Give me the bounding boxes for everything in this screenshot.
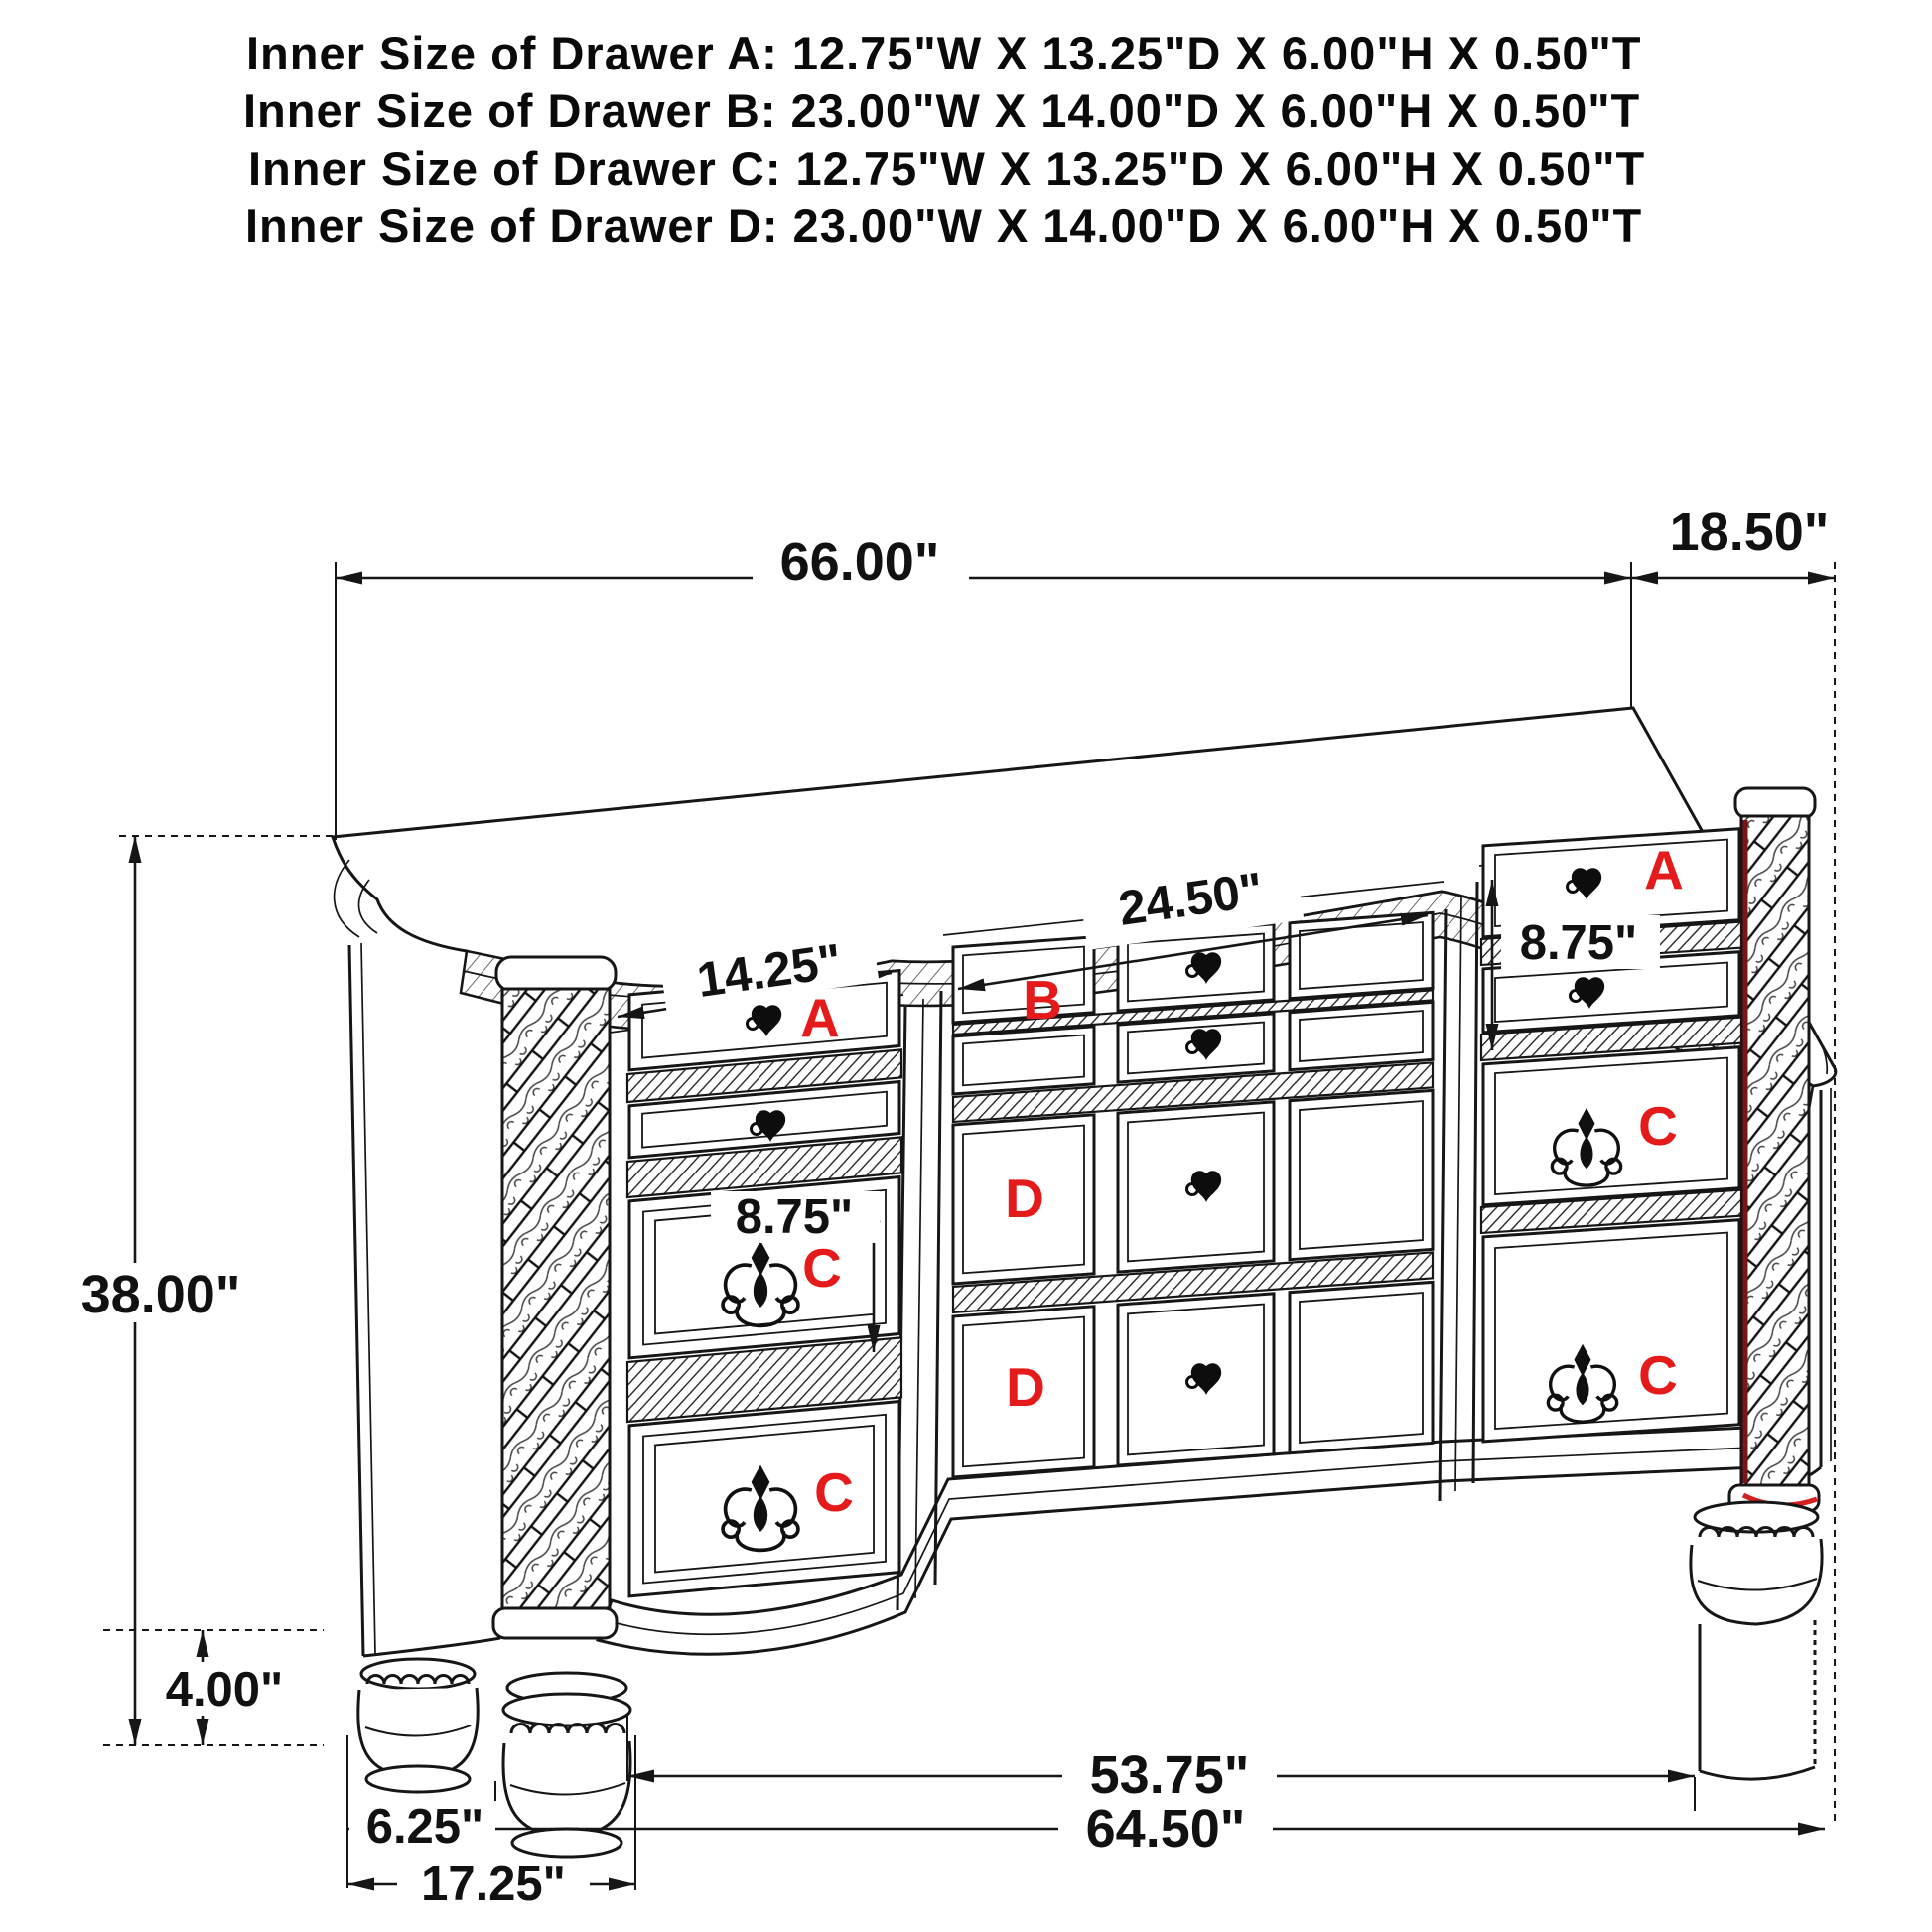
base-width-label: 64.50" [1086, 1799, 1246, 1859]
foot-inset-label: 6.25" [366, 1800, 484, 1854]
title-line-drawer-c: Inner Size of Drawer C: 12.75"W X 13.25"… [248, 142, 1645, 195]
dimension-base-width: 64.50" [495, 1799, 1825, 1859]
drawer-label-a-left: A [800, 987, 840, 1048]
drawer-d2-panel-right [1290, 1282, 1433, 1452]
title-line-drawer-b: Inner Size of Drawer B: 23.00"W X 14.00"… [243, 84, 1640, 137]
drawer-label-c-right-2: C [1638, 1344, 1678, 1406]
dresser-dimension-diagram: Inner Size of Drawer A: 12.75"W X 13.25"… [0, 0, 1932, 1932]
divider-left-middle [897, 991, 941, 1610]
dimension-inner-feet-span: 53.75" [627, 1714, 1695, 1811]
drawer-label-c-left-2: C [814, 1461, 854, 1523]
drawer-c-left-2 [629, 1402, 899, 1596]
dimension-overall-height: 38.00" [58, 836, 336, 1745]
right-height-label: 8.75" [1520, 916, 1638, 970]
left-corner-cap-detail [335, 860, 377, 937]
title-line-drawer-a: Inner Size of Drawer A: 12.75"W X 13.25"… [246, 27, 1641, 79]
foot-back-left [358, 1659, 478, 1792]
drawer-label-d-upper: D [1005, 1168, 1044, 1229]
drawer-label-c-left-1: C [802, 1237, 842, 1299]
overall-height-label: 38.00" [81, 1265, 241, 1324]
dimension-overall-width: 66.00" [336, 530, 1631, 840]
drawer-label-a-right: A [1644, 839, 1684, 900]
left-foot-span-label: 17.25" [421, 1858, 566, 1911]
drawer-label-c-right-1: C [1638, 1095, 1678, 1157]
overall-width-label: 66.00" [780, 532, 940, 592]
foot-right [1691, 1502, 1822, 1779]
left-side-panel [349, 943, 500, 1656]
drawer-label-d-lower: D [1006, 1356, 1045, 1418]
right-column [1729, 788, 1819, 1511]
inner-feet-span-label: 53.75" [1090, 1745, 1250, 1805]
left-height-label: 8.75" [736, 1190, 854, 1244]
left-column [493, 957, 617, 1638]
drawer-d1-panel-right [1290, 1090, 1433, 1259]
overall-depth-label: 18.50" [1670, 502, 1830, 562]
title-block: Inner Size of Drawer A: 12.75"W X 13.25"… [243, 27, 1645, 252]
title-line-drawer-d: Inner Size of Drawer D: 23.00"W X 14.00"… [245, 200, 1642, 252]
divider-middle-right [1440, 882, 1477, 1501]
dresser-dimension-diagram-page: Inner Size of Drawer A: 12.75"W X 13.25"… [0, 0, 1932, 1932]
foot-height-label: 4.00" [166, 1663, 284, 1717]
